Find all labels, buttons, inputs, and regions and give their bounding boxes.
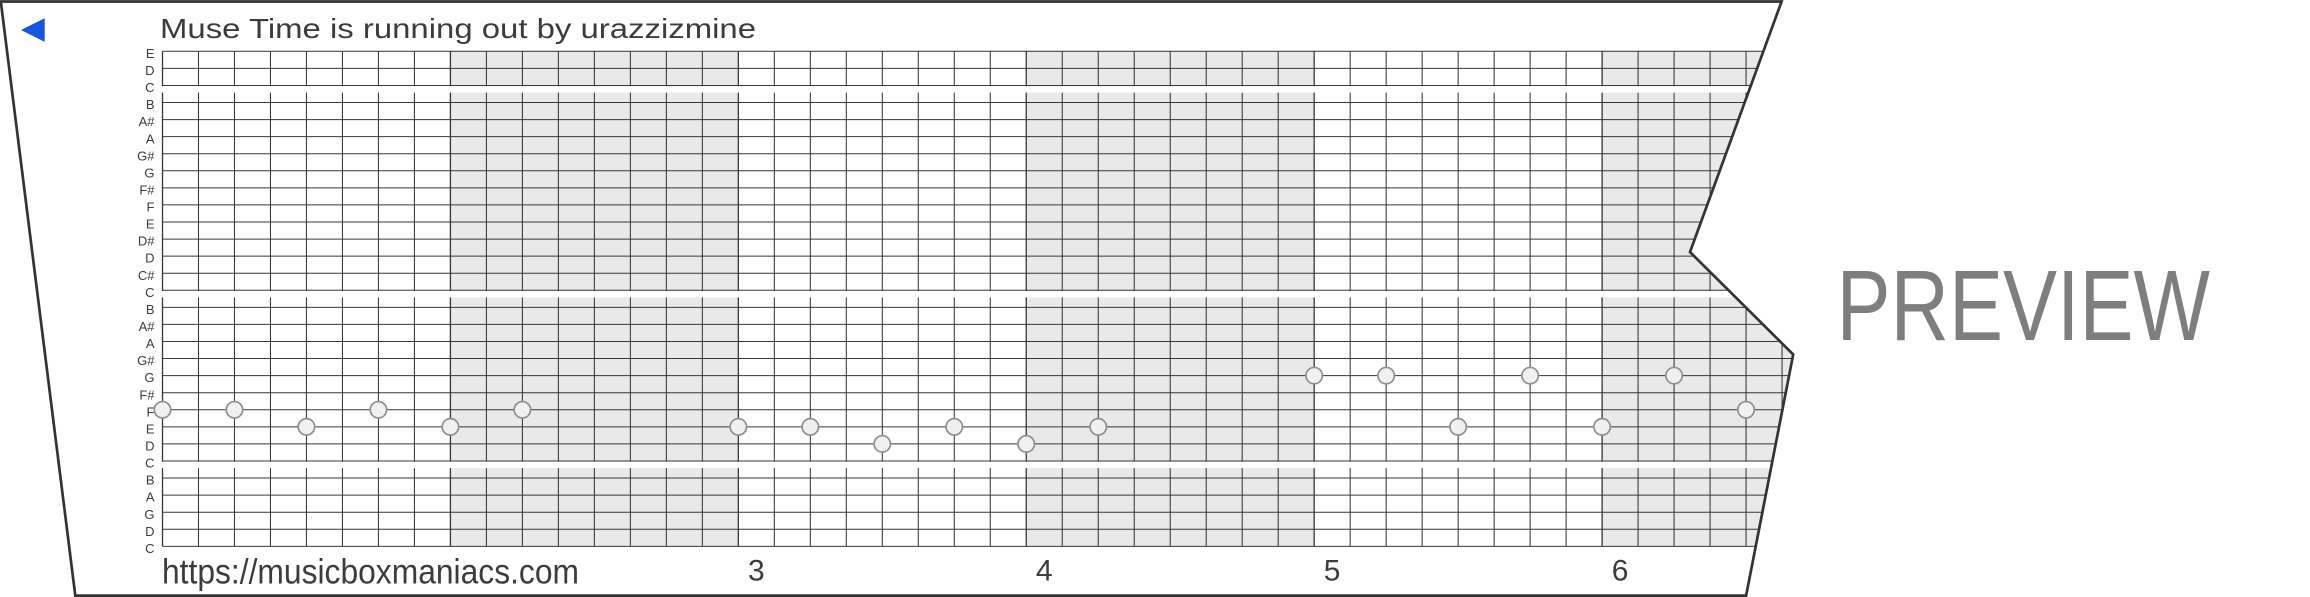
- svg-text:F: F: [147, 404, 155, 419]
- svg-text:5: 5: [1324, 555, 1341, 588]
- svg-text:A#: A#: [139, 114, 156, 129]
- svg-text:F#: F#: [139, 182, 155, 197]
- svg-text:D: D: [145, 524, 154, 539]
- svg-text:C: C: [145, 541, 154, 556]
- svg-text:A: A: [146, 131, 155, 146]
- svg-text:A: A: [146, 490, 155, 505]
- svg-text:C: C: [145, 285, 154, 300]
- svg-text:E: E: [146, 46, 155, 61]
- svg-text:E: E: [146, 217, 155, 232]
- svg-text:PREVIEW: PREVIEW: [1837, 250, 2211, 362]
- svg-text:D: D: [145, 63, 154, 78]
- svg-text:C: C: [145, 456, 154, 471]
- svg-text:3: 3: [748, 555, 765, 588]
- svg-text:B: B: [146, 97, 155, 112]
- svg-text:6: 6: [1612, 555, 1629, 588]
- svg-text:C#: C#: [138, 268, 155, 283]
- svg-text:G: G: [144, 165, 154, 180]
- svg-text:D: D: [145, 251, 154, 266]
- svg-text:A: A: [146, 336, 155, 351]
- svg-text:D#: D#: [138, 234, 155, 249]
- svg-text:G#: G#: [137, 148, 155, 163]
- svg-text:D: D: [145, 439, 154, 454]
- svg-text:C: C: [145, 80, 154, 95]
- svg-text:G#: G#: [137, 353, 155, 368]
- svg-text:F: F: [147, 200, 155, 215]
- svg-text:E: E: [146, 421, 155, 436]
- svg-text:G: G: [144, 370, 154, 385]
- svg-text:G: G: [144, 507, 154, 522]
- svg-text:A#: A#: [139, 319, 156, 334]
- svg-text:Muse Time is running out by ur: Muse Time is running out by urazzizmine: [160, 13, 756, 44]
- svg-text:https://musicboxmaniacs.com: https://musicboxmaniacs.com: [162, 552, 579, 591]
- svg-text:4: 4: [1036, 555, 1053, 588]
- svg-text:B: B: [146, 302, 155, 317]
- svg-text:F#: F#: [139, 387, 155, 402]
- svg-text:B: B: [146, 473, 155, 488]
